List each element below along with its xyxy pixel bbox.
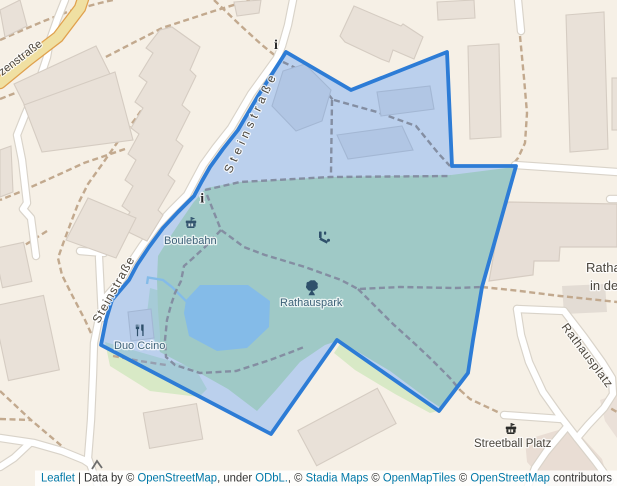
svg-text:i: i — [274, 38, 278, 53]
svg-text:Rathauspark: Rathauspark — [280, 297, 343, 309]
svg-text:Boulebahn: Boulebahn — [164, 235, 217, 247]
svg-text:Duo Ccino: Duo Ccino — [114, 340, 165, 352]
svg-text:Rathaus: Rathaus — [586, 260, 617, 275]
svg-text:in der S: in der S — [590, 278, 617, 293]
svg-text:Streetball Platz: Streetball Platz — [474, 438, 552, 450]
svg-text:Leaflet | Data by © OpenStreet: Leaflet | Data by © OpenStreetMap, under… — [41, 473, 612, 485]
svg-text:i: i — [200, 192, 204, 207]
